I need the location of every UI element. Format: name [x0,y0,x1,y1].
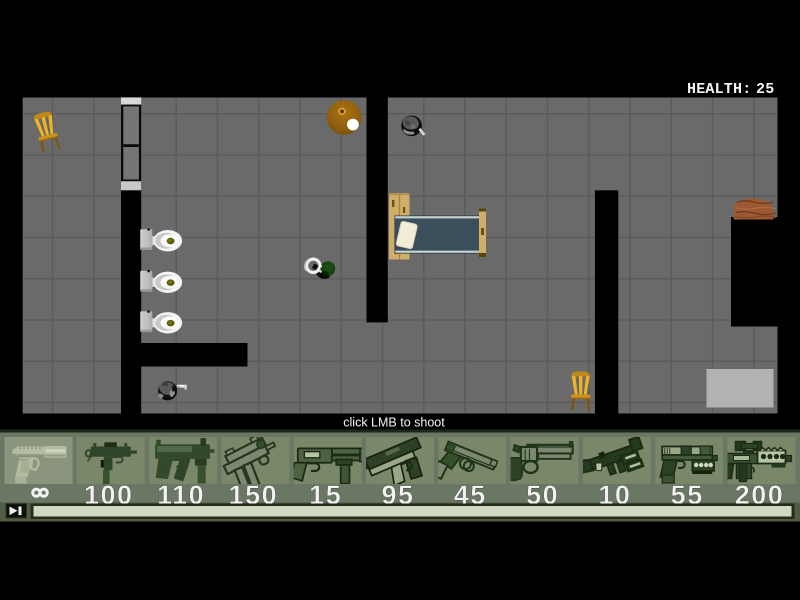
svg-text:HEALTH:: HEALTH: [687,81,751,98]
svg-text:click LMB to shoot: click LMB to shoot [343,416,445,430]
svg-text:25: 25 [756,81,774,98]
